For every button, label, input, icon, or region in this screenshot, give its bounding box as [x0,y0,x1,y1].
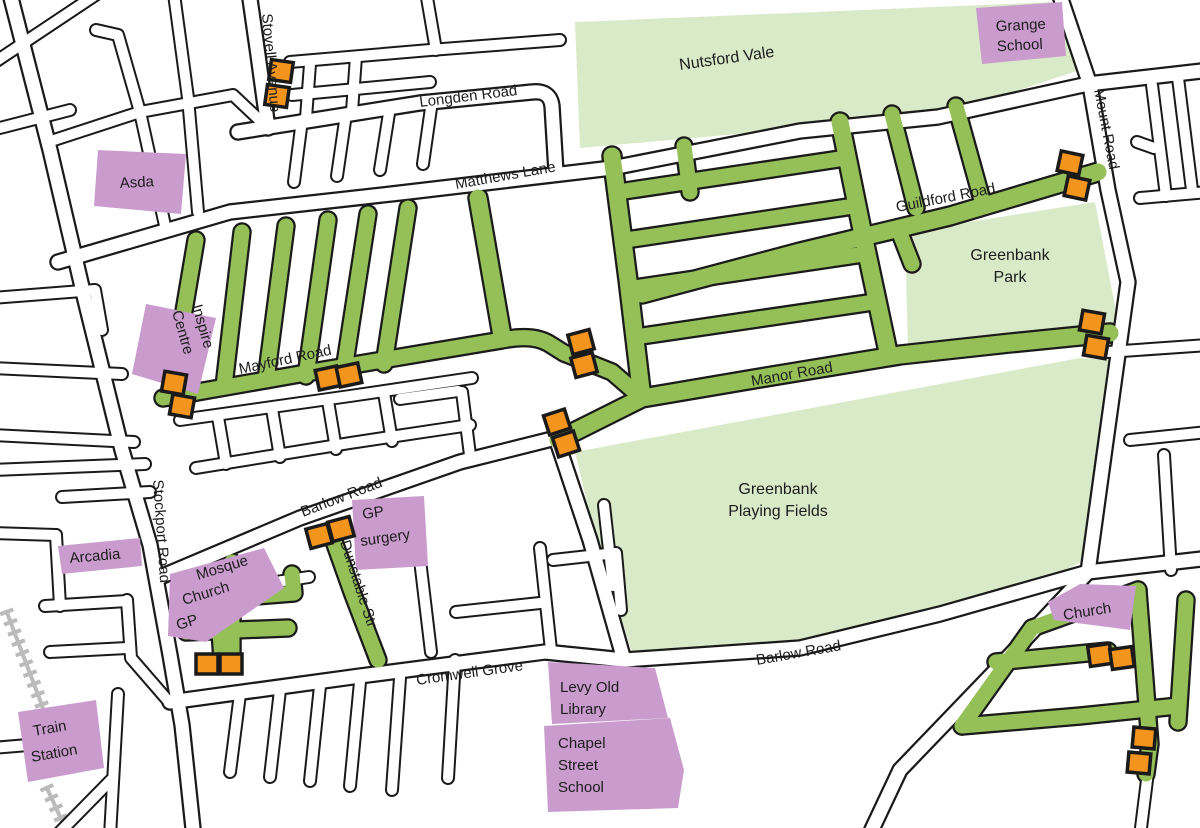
green-street [642,302,874,336]
modal-filter-marker [161,371,186,395]
modal-filter-marker [1110,647,1135,670]
modal-filter-marker [220,654,242,674]
side-street [50,648,127,652]
side-street [1137,142,1154,148]
side-street [62,492,150,497]
side-street [1108,345,1200,352]
map-canvas: Stovell Avenue Longden Road Matthews Lan… [0,0,1200,828]
modal-filter-marker [1057,151,1083,175]
modal-filter-marker [336,363,362,387]
green-street [478,198,502,336]
modal-filter-marker [1088,644,1113,667]
poi-train-station [18,700,104,782]
poi-label-grange-school-2: School [996,36,1043,55]
side-street [306,64,310,118]
road-barlow-road-far-east [1088,558,1200,572]
poi-label-levy-2: Library [560,701,606,718]
side-street [420,560,431,652]
modal-filter-marker [543,409,570,435]
side-street [0,435,134,442]
side-street [0,464,145,470]
poi-label-levy-1: Levy Old [560,679,619,696]
side-street [96,30,140,112]
modal-filter-marker [1083,335,1108,359]
side-street [56,780,111,828]
modal-filter-marker [1127,752,1151,774]
modal-filter-marker [1132,727,1156,749]
side-street [352,57,356,111]
park-label-playing-fields-2: Playing Fields [728,503,828,520]
poi-label-grange-school-1: Grange [995,16,1046,36]
side-street [1178,78,1192,190]
poi-label-asda: Asda [119,173,155,192]
side-street [0,368,122,374]
street-map: Stovell Avenue Longden Road Matthews Lan… [0,0,1200,828]
modal-filter-marker [196,654,218,674]
green-street [684,146,690,192]
park-label-greenbank-park-2: Park [994,269,1028,286]
poi-label-gp-surgery-1: GP [361,503,385,523]
side-street [45,601,127,606]
modal-filter-marker [568,329,594,354]
modal-filter-marker [1064,176,1090,200]
modal-filter-marker [169,394,194,418]
poi-label-chapel-2: Street [558,757,599,774]
modal-filter-marker [552,431,579,457]
modal-filter-marker [1079,310,1104,334]
side-street [1152,85,1166,196]
poi-label-chapel-3: School [558,779,604,796]
green-street [626,206,854,240]
side-street [0,533,56,535]
park-label-playing-fields-1: Greenbank [738,481,818,498]
side-street [1140,192,1200,198]
side-street [290,40,560,62]
side-street [56,535,60,606]
park-label-greenbank-park-1: Greenbank [970,247,1050,264]
side-street [1164,455,1171,570]
poi-label-chapel-1: Chapel [558,735,606,752]
modal-filter-marker [571,352,597,377]
